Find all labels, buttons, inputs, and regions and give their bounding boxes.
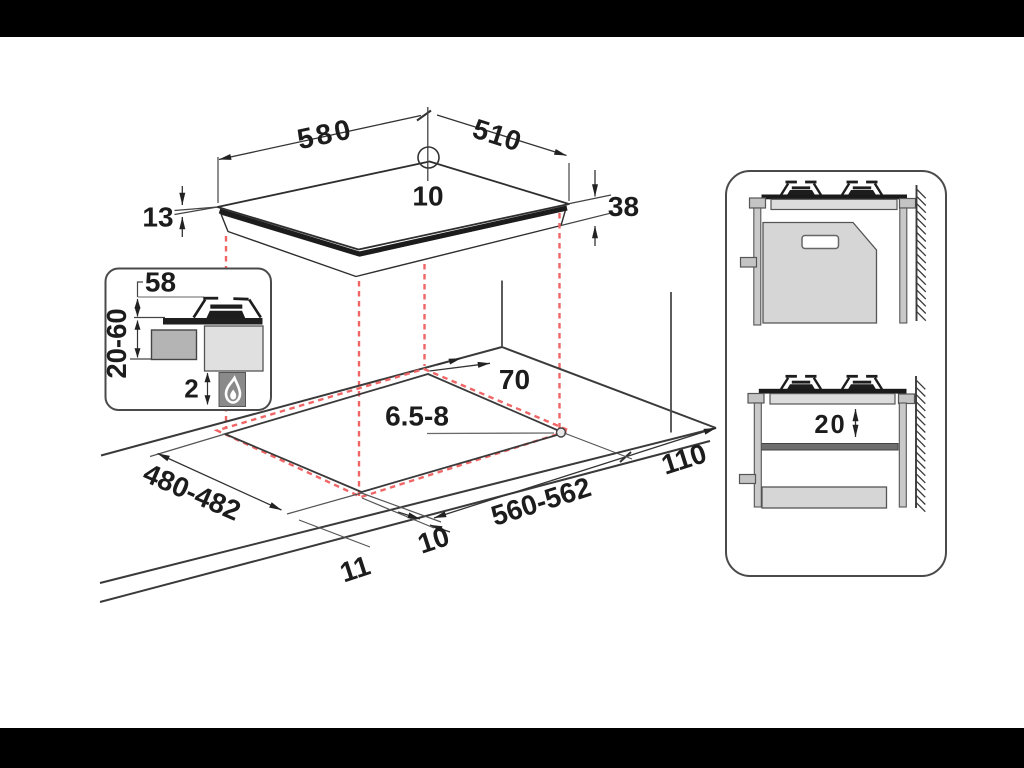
svg-text:38: 38 — [608, 191, 639, 222]
svg-text:2: 2 — [184, 374, 198, 404]
svg-text:20: 20 — [814, 411, 846, 439]
svg-text:70: 70 — [499, 364, 530, 395]
svg-text:58: 58 — [145, 267, 176, 298]
svg-text:13: 13 — [142, 202, 173, 233]
svg-text:10: 10 — [412, 181, 443, 212]
svg-text:6.5-8: 6.5-8 — [385, 401, 449, 432]
svg-text:20-60: 20-60 — [101, 308, 132, 378]
